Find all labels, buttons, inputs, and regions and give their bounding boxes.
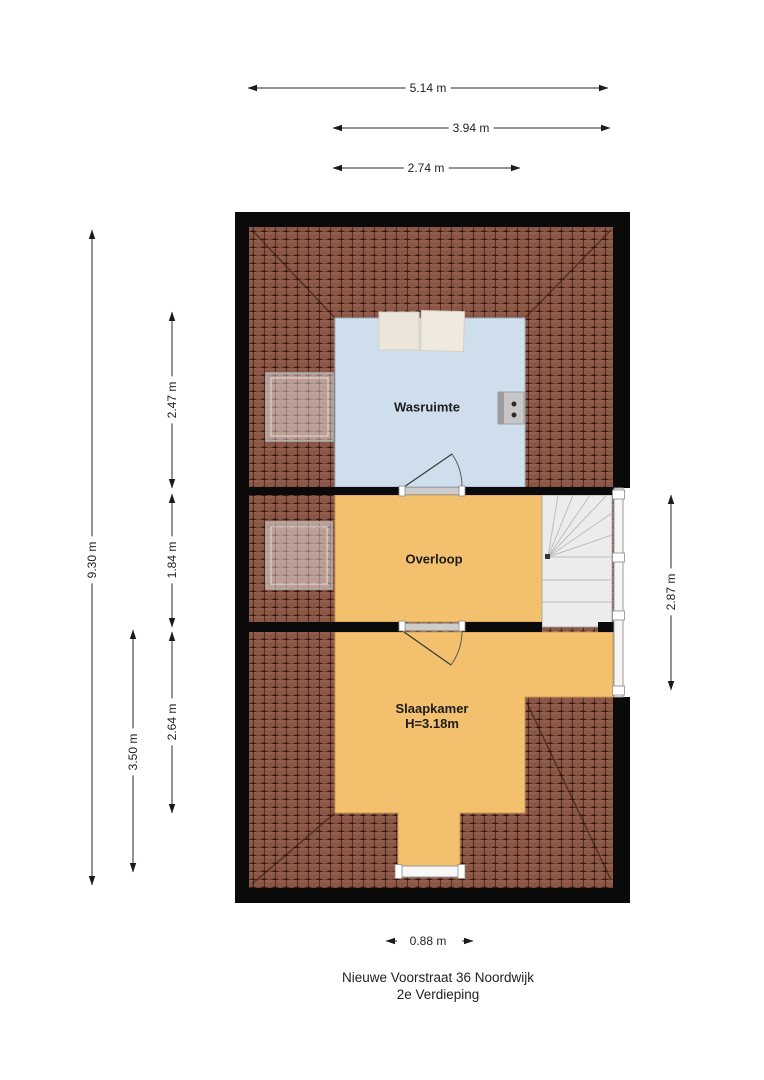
staircase	[542, 495, 612, 627]
floorplan-page: 5.14 m 3.94 m 2.74 m 9.30 m 2.47 m 1.84 …	[0, 0, 764, 1080]
plan-title-block: Nieuwe Voorstraat 36 Noordwijk 2e Verdie…	[342, 969, 534, 1003]
plan-title-floor: 2e Verdieping	[342, 986, 534, 1003]
room-label-slaapkamer-block: Slaapkamer H=3.18m	[396, 701, 469, 731]
room-label-wasruimte: Wasruimte	[394, 400, 460, 415]
floorplan-drawing	[0, 0, 764, 1080]
room-label-slaapkamer: Slaapkamer	[396, 701, 469, 716]
dim-height-lower-label: 3.50 m	[126, 729, 140, 776]
dormer-window	[395, 865, 465, 879]
skylight-window-upper	[266, 373, 333, 441]
skylight-window-lower	[266, 522, 332, 589]
dim-width-dormer-label: 0.88 m	[406, 934, 451, 948]
dim-height-slaapkamer-label: 2.64 m	[165, 699, 179, 746]
dim-height-overloop-label: 1.84 m	[165, 537, 179, 584]
dim-width-wasruimte-label: 2.74 m	[404, 161, 449, 175]
stair-newel-post	[545, 554, 550, 559]
dim-height-wasruimte-label: 2.47 m	[165, 377, 179, 424]
dim-width-total-label: 5.14 m	[406, 81, 451, 95]
dim-height-total-label: 9.30 m	[85, 537, 99, 584]
room-label-overloop: Overloop	[405, 552, 462, 567]
dim-height-stairwell-label: 2.87 m	[664, 569, 678, 616]
plan-title-address: Nieuwe Voorstraat 36 Noordwijk	[342, 969, 534, 986]
washer-unit	[498, 392, 524, 424]
stairwell-window	[613, 488, 625, 697]
cabinet-boxes	[379, 310, 465, 351]
room-label-slaapkamer-height: H=3.18m	[396, 716, 469, 731]
dim-width-upper-label: 3.94 m	[449, 121, 494, 135]
